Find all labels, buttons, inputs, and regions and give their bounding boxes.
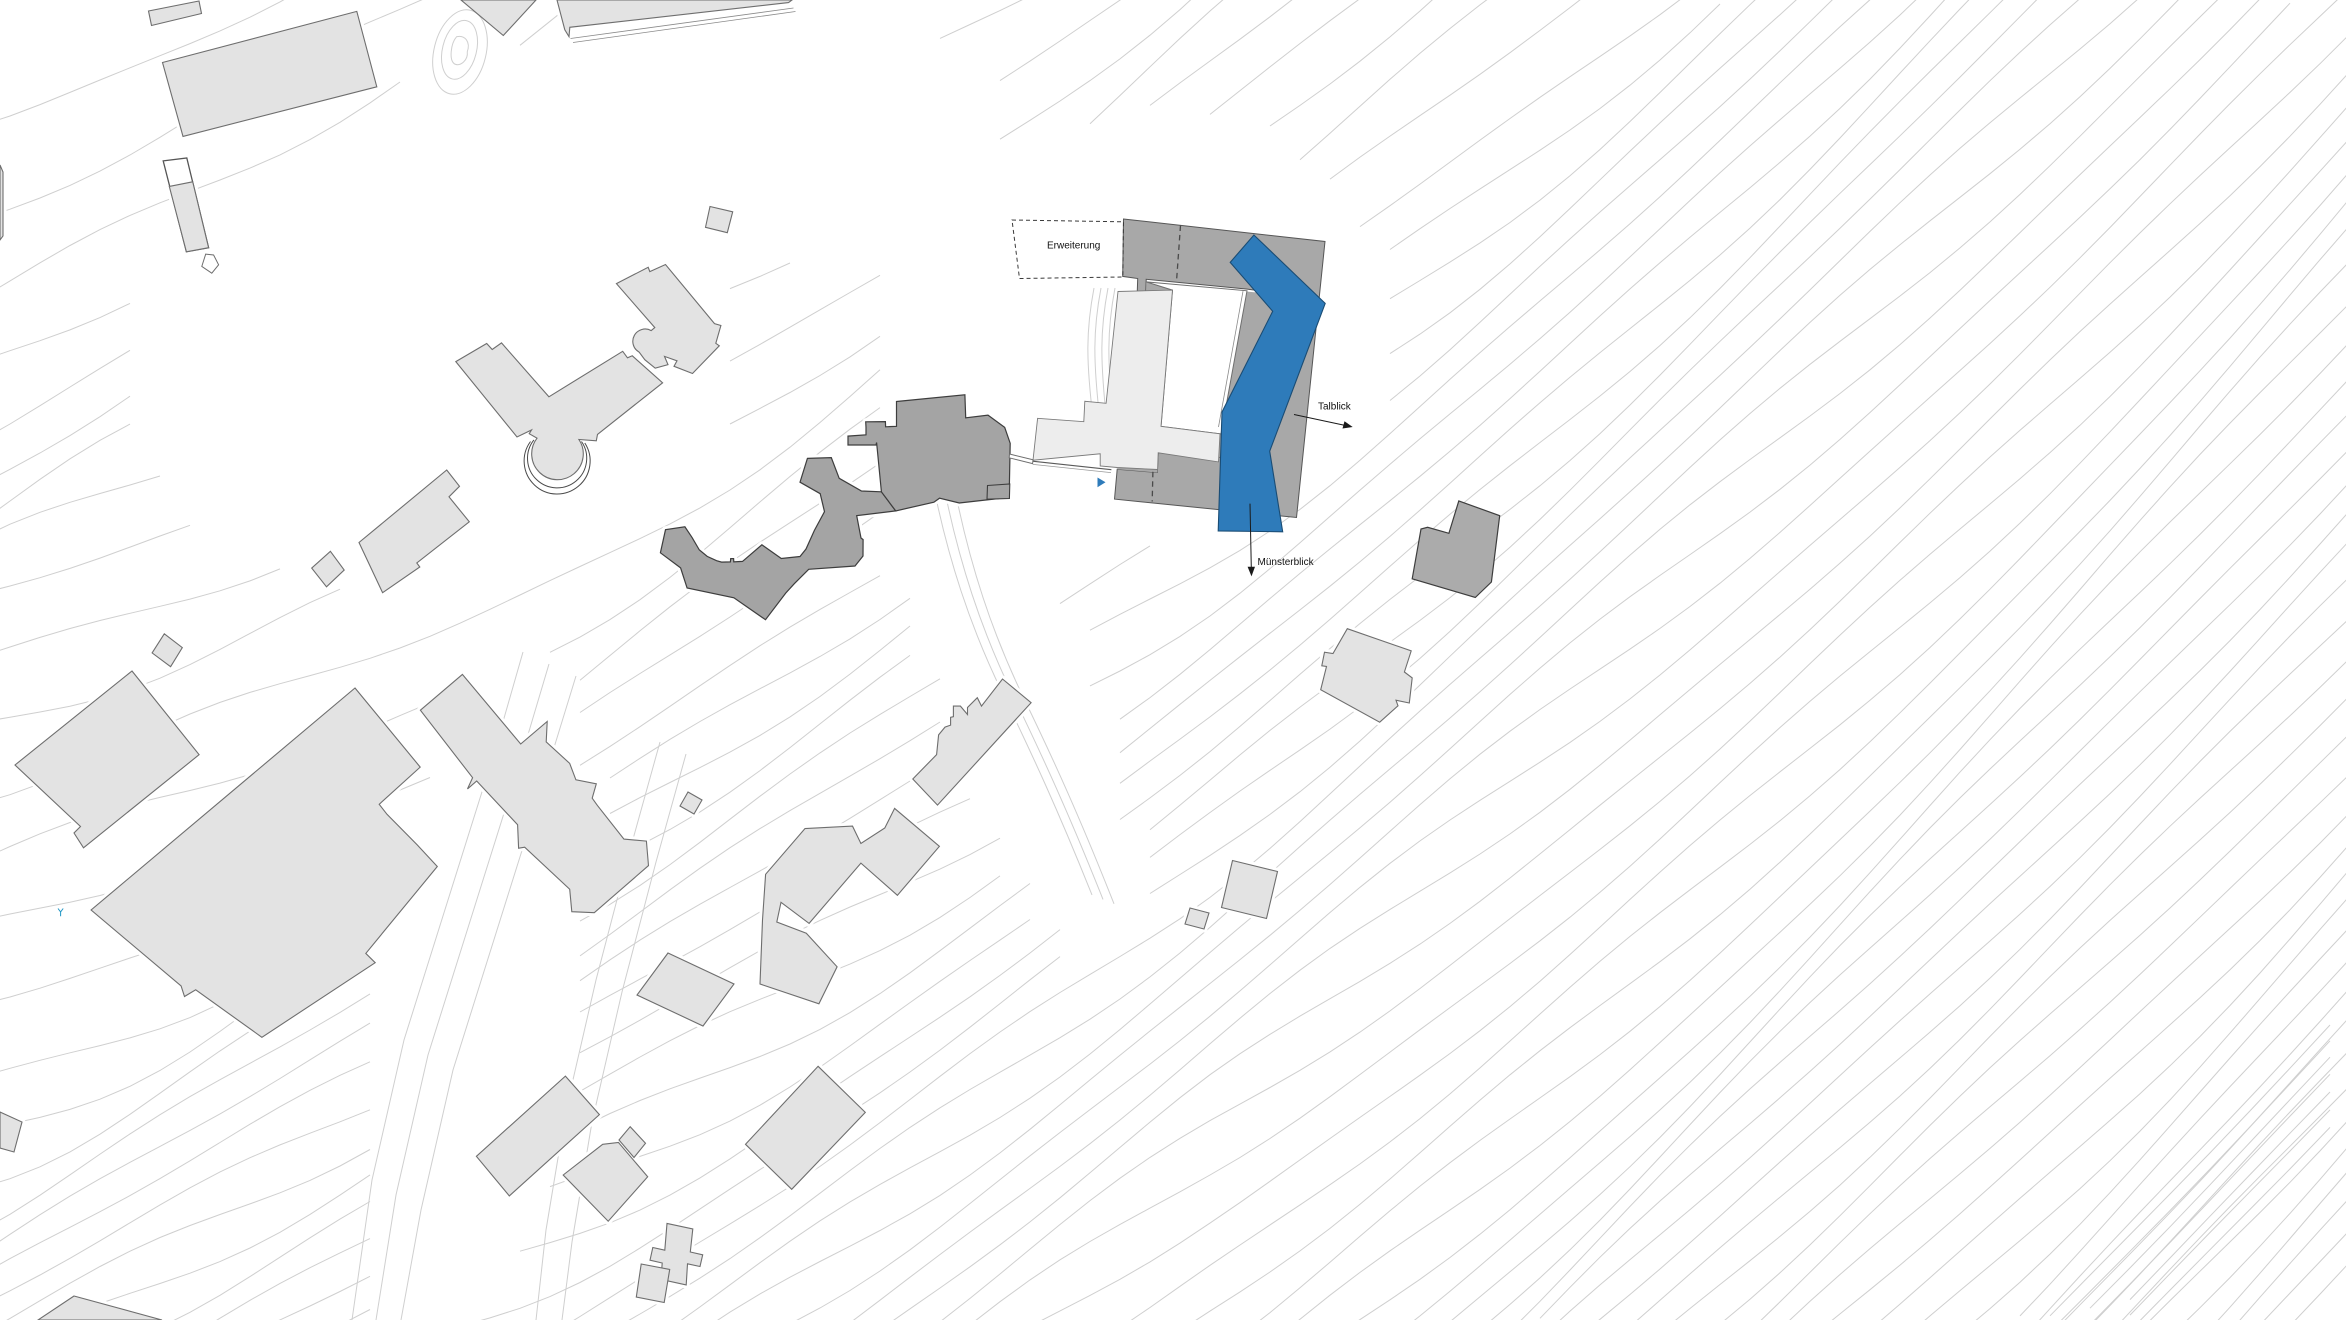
svg-text:Erweiterung: Erweiterung	[1047, 241, 1100, 252]
svg-text:Münsterblick: Münsterblick	[1258, 557, 1315, 568]
svg-text:Talblick: Talblick	[1318, 402, 1352, 413]
